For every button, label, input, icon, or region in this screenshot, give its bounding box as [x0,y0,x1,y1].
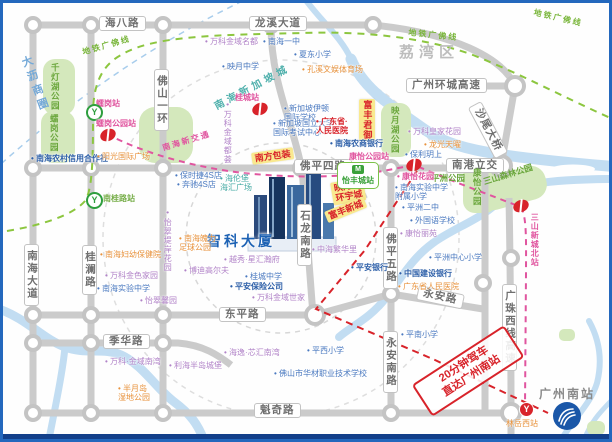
poi-label: 海伦堡 海汇广场 [220,174,252,192]
station-marker-icon: Y [86,192,103,209]
road-label: 海八路 [99,16,146,31]
poi-label: 康怡花园 [397,172,434,181]
station-label: 林岳西站 [506,419,538,428]
poi-label: 平安保险公司 [230,282,283,291]
poi-label: 广东省· 人民医院 [316,117,348,135]
metro-station-badge: M怡丰城站 [337,162,379,189]
poi-label: 万科皇家花园 [408,127,461,136]
poi-label: 怡翠馨园 [140,296,177,305]
road-label: 石龙南路 [297,204,312,266]
poi-label: 平洲二中 [402,203,439,212]
poi-label: 利海半岛城堡 [169,361,222,370]
park-label: 平洲公园 [431,173,465,183]
park-label: 千灯湖公园 [50,63,60,111]
poi-label: 龙光天曜 [424,140,461,149]
guangzhou-south-rail-icon [552,401,582,431]
poi-label: 怡翠堤岸花园 [163,211,172,272]
poi-label: 佛山市华材职业技术学校 [274,369,367,378]
poi-label: 孔溪文娱体育场 [302,65,363,74]
poi-label: 保时捷4S店 [175,171,222,180]
poi-label: 半月岛 湿地公园 [118,384,150,402]
poi-label: 万科金域都荟 [223,103,232,164]
poi-label: 南海实验中学 附属小学 [395,183,448,201]
poi-label: 万科·金域南湾 [105,357,161,366]
poi-label: 平洲中心小学 [429,253,482,262]
poi-label: 南海魄力 足球公园 [179,234,216,252]
poi-label: 南海妇幼保健院 [100,250,161,259]
station-marker-icon: Y [519,402,534,417]
guangzhou-south-label: 广州南站 [539,385,595,402]
landmark-tag: 富丰君御 [359,99,375,141]
location-map: 智科大厦 荔湾区 海八路龙溪大道广州环城高速沙尾大桥佛山一环佛平四路南港立交石龙… [0,0,612,442]
poi-label: 桂城中学 [245,272,282,281]
station-label: 康怡公园站 [349,152,389,161]
district-label: 荔湾区 [399,41,459,62]
poi-label: 万科金域名都 [205,37,258,46]
road-label: 魁奇路 [254,403,301,418]
road-label: 桂澜路 [82,245,97,295]
poi-label: 阳光国际广场 [97,152,150,161]
poi-label: 平南小学 [401,330,438,339]
road-label: 佛平五路 [383,227,398,289]
poi-label: 映月中学 [222,62,259,71]
metro-station-badge-label: 怡丰城站 [342,175,374,186]
poi-label: 海逸·芯汇南湾 [224,348,280,357]
metro-train-icon: M [352,165,364,174]
poi-label: 平安银行 [351,263,388,272]
poi-label: 万科金色家园 [105,271,158,280]
road-label: 南海大道 [24,244,39,306]
poi-label: 博迪高尔夫 [184,266,229,275]
park-label: 𧒽岗公园 [49,114,59,152]
station-label: 南桂路站 [103,194,135,203]
poi-label: 康怡丽苑 [400,229,437,238]
park-label: 映月湖公园 [390,106,400,154]
park-label: 康怡公园 [472,168,482,206]
station-label: 𧒽岗公园站 [96,119,136,128]
road-label: 龙溪大道 [249,16,307,31]
road-label: 佛山一环 [154,69,169,131]
road-label: 季华路 [103,334,150,349]
station-label: 桂城站 [235,93,259,102]
poi-label: 万科金域世家 [252,293,305,302]
poi-label: 平西小学 [307,346,344,355]
poi-label: 奔驰4S店 [177,180,216,189]
poi-label: 南海一中 [263,37,300,46]
road-label: 东平路 [219,307,266,322]
station-label: 三山新城北站 [530,213,539,267]
road-label: 永安南路 [383,331,398,393]
zhike-tower-label: 智科大厦 [207,231,275,251]
poi-label: 中海繁华里 [312,245,357,254]
poi-label: 外国语学校 [410,216,455,225]
poi-label: 保利玥上 [405,150,442,159]
road-label: 广州环城高速 [406,78,487,93]
poi-label: 南海实验中学 [97,284,150,293]
poi-label: 南海农商银行 [330,139,383,148]
poi-label: 中国建设银行 [399,269,452,278]
poi-label: 夏东小学 [294,50,331,59]
poi-label: 越秀·星汇瀚府 [224,255,280,264]
poi-label: 广东省人民医院 [398,282,459,291]
